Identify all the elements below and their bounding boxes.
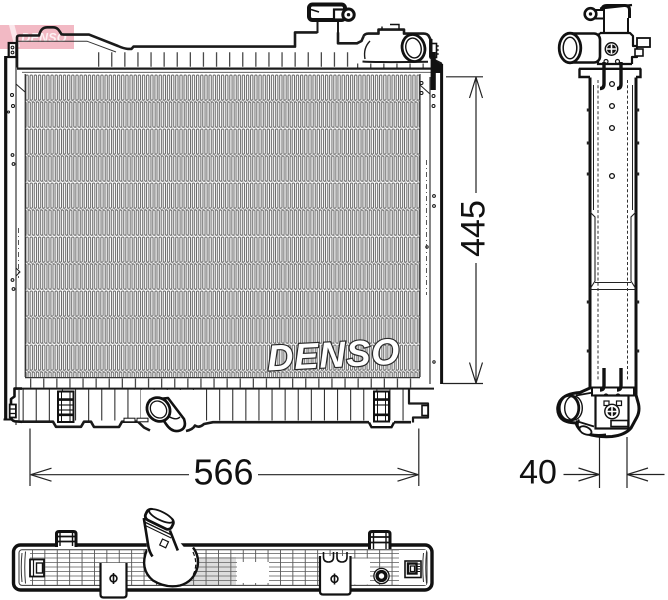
svg-text:40: 40	[519, 454, 557, 492]
svg-text:566: 566	[193, 452, 253, 493]
svg-text:445: 445	[455, 200, 493, 257]
svg-text:DENSO: DENSO	[266, 331, 401, 379]
